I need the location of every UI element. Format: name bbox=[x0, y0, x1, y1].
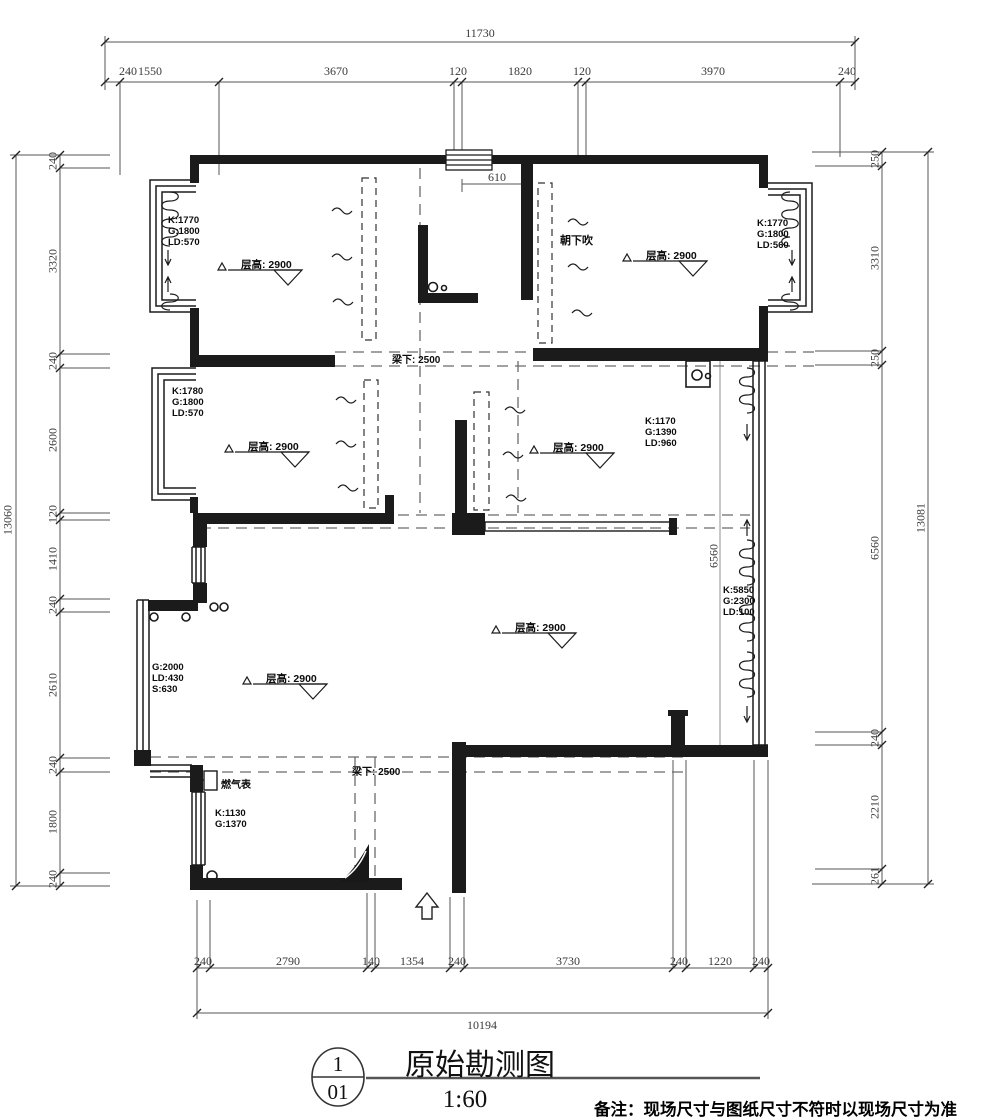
half-wall bbox=[485, 522, 671, 531]
dim-label: 1410 bbox=[46, 547, 61, 571]
dim-label: 240 bbox=[448, 954, 466, 969]
gas-meter-label: 燃气表 bbox=[221, 776, 251, 791]
dim-label: 240 bbox=[868, 729, 883, 747]
dim-label: 3310 bbox=[868, 246, 883, 270]
dim-label: 1820 bbox=[508, 64, 532, 79]
dim-label: 3970 bbox=[701, 64, 725, 79]
vent-note-label: 朝下吹 bbox=[560, 232, 593, 248]
drawing-title: 原始勘测图 bbox=[405, 1040, 555, 1084]
heating-pipes bbox=[150, 603, 228, 881]
dim-label: 261 bbox=[868, 867, 883, 885]
beam-label: 梁下: 2500 bbox=[392, 351, 440, 366]
dim-label: 120 bbox=[46, 505, 61, 523]
dim-label: 1550 bbox=[138, 64, 162, 79]
dim-label: 2610 bbox=[46, 673, 61, 697]
sheet-number-top: 1 bbox=[333, 1052, 344, 1077]
dim-label: 250 bbox=[868, 150, 883, 168]
dim-label: 3670 bbox=[324, 64, 348, 79]
window-spec-label: K:1770 G:1800 LD:560 bbox=[757, 218, 789, 251]
dim-right-total: 13081 bbox=[914, 503, 929, 533]
ceiling-height-label: 层高: 2900 bbox=[241, 257, 292, 272]
dim-top-total: 11730 bbox=[465, 26, 495, 41]
dim-label: 1220 bbox=[708, 954, 732, 969]
window-spec-label: K:1130 G:1370 bbox=[215, 808, 247, 830]
window-spec-label: K:1770 G:1800 LD:570 bbox=[168, 215, 200, 248]
dim-label: 3730 bbox=[556, 954, 580, 969]
dim-label: 240 bbox=[119, 64, 137, 79]
dim-label: 240 bbox=[194, 954, 212, 969]
dim-label: 240 bbox=[46, 352, 61, 370]
vent-grille bbox=[446, 150, 492, 170]
entry-arrow-icon bbox=[416, 893, 438, 919]
dim-label: 3320 bbox=[46, 249, 61, 273]
ceiling-height-label: 层高: 2900 bbox=[266, 671, 317, 686]
dim-label: 120 bbox=[573, 64, 591, 79]
dim-living-depth: 6560 bbox=[707, 544, 722, 568]
dim-left-total: 13060 bbox=[1, 505, 16, 535]
dim-label: 2210 bbox=[868, 795, 883, 819]
dim-label: 240 bbox=[46, 756, 61, 774]
dim-label: 240 bbox=[46, 596, 61, 614]
beam-label: 梁下: 2500 bbox=[352, 763, 400, 778]
ceiling-height-label: 层高: 2900 bbox=[248, 439, 299, 454]
dim-label: 1354 bbox=[400, 954, 424, 969]
window-spec-label: K:5850 G:2300 LD:100 bbox=[723, 585, 755, 618]
pipe-shaft bbox=[686, 361, 711, 387]
dim-label: 140 bbox=[362, 954, 380, 969]
dim-label: 2600 bbox=[46, 428, 61, 452]
floor-plan-drawing bbox=[0, 0, 992, 1120]
dim-label: 250 bbox=[868, 349, 883, 367]
window-spec-label: G:2000 LD:430 S:630 bbox=[152, 662, 184, 695]
dim-label: 1800 bbox=[46, 810, 61, 834]
dim-label: 2790 bbox=[276, 954, 300, 969]
flue-pipes bbox=[429, 283, 447, 292]
sheet-number-bottom: 01 bbox=[328, 1080, 349, 1105]
dim-door-width: 610 bbox=[488, 170, 506, 185]
dim-label: 6560 bbox=[868, 536, 883, 560]
dim-label: 240 bbox=[752, 954, 770, 969]
window-spec-label: K:1170 G:1390 LD:960 bbox=[645, 416, 677, 449]
window-spec-label: K:1780 G:1800 LD:570 bbox=[172, 386, 204, 419]
dim-label: 120 bbox=[449, 64, 467, 79]
drawing-scale: 1:60 bbox=[443, 1086, 487, 1114]
ceiling-height-label: 层高: 2900 bbox=[646, 248, 697, 263]
ceiling-height-label: 层高: 2900 bbox=[553, 440, 604, 455]
drawing-note: 备注：现场尺寸与图纸尺寸不符时以现场尺寸为准 bbox=[594, 1096, 957, 1120]
ceiling-height-label: 层高: 2900 bbox=[515, 620, 566, 635]
dim-label: 240 bbox=[46, 870, 61, 888]
dim-label: 240 bbox=[46, 152, 61, 170]
dim-bottom-total: 10194 bbox=[467, 1018, 497, 1033]
dim-label: 240 bbox=[670, 954, 688, 969]
floor-plan-page: 11730 240 1550 3670 120 1820 120 3970 24… bbox=[0, 0, 992, 1120]
dim-label: 240 bbox=[838, 64, 856, 79]
